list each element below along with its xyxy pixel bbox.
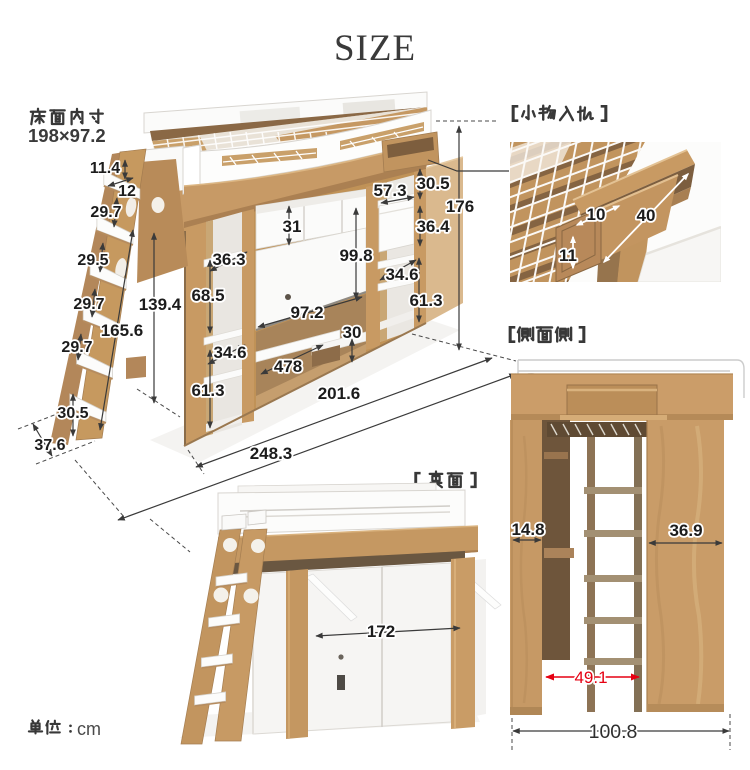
svg-text:40: 40 [637, 206, 656, 225]
svg-text:10: 10 [587, 205, 606, 224]
svg-text:11.4: 11.4 [90, 160, 120, 177]
svg-text:61.3: 61.3 [191, 381, 224, 400]
svg-text:12: 12 [118, 183, 136, 200]
svg-text:97.2: 97.2 [290, 303, 323, 322]
svg-text:34.6: 34.6 [385, 265, 418, 284]
svg-text:31: 31 [283, 217, 302, 236]
svg-text:176: 176 [446, 197, 474, 216]
svg-text:11: 11 [559, 246, 577, 265]
svg-text:139.4: 139.4 [139, 295, 182, 314]
svg-text:478: 478 [274, 357, 302, 376]
svg-text:68.5: 68.5 [191, 286, 224, 305]
svg-text:29.7: 29.7 [73, 296, 104, 313]
svg-text:SIZE: SIZE [334, 28, 416, 69]
svg-text:57.3: 57.3 [373, 181, 406, 200]
svg-text:99.8: 99.8 [339, 246, 372, 265]
svg-text:30.5: 30.5 [416, 174, 449, 193]
svg-text:30.5: 30.5 [57, 405, 88, 422]
svg-text:248.3: 248.3 [250, 444, 293, 463]
svg-text:198×97.2: 198×97.2 [28, 125, 106, 146]
svg-text:29.7: 29.7 [61, 339, 92, 356]
svg-text:172: 172 [367, 622, 395, 641]
svg-text:100.8: 100.8 [589, 721, 638, 743]
svg-text:14.8: 14.8 [511, 520, 544, 539]
svg-text:201.6: 201.6 [318, 384, 361, 403]
svg-text:29.5: 29.5 [77, 252, 108, 269]
svg-text:165.6: 165.6 [101, 321, 144, 340]
svg-text:36.3: 36.3 [212, 250, 245, 269]
svg-text:61.3: 61.3 [409, 291, 442, 310]
svg-text:30: 30 [343, 323, 362, 342]
svg-text:36.9: 36.9 [669, 521, 702, 540]
svg-text:34.6: 34.6 [213, 343, 246, 362]
svg-text:cm: cm [77, 719, 101, 739]
svg-text:36.4: 36.4 [416, 217, 450, 236]
svg-text:49.1: 49.1 [574, 668, 607, 687]
svg-text:29.7: 29.7 [90, 204, 121, 221]
svg-text:37.6: 37.6 [34, 437, 65, 454]
